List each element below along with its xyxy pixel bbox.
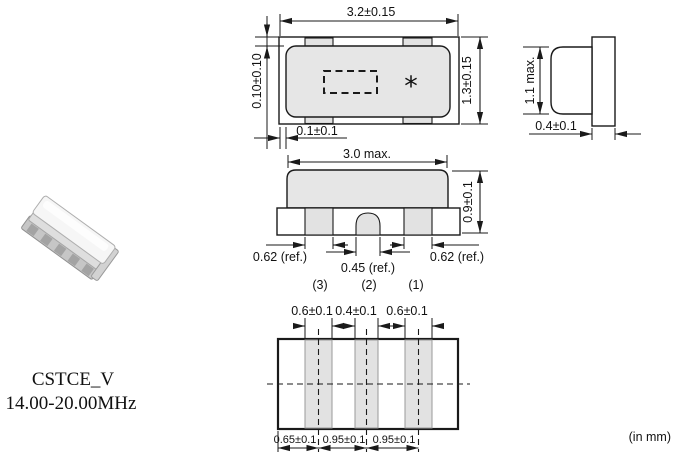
dim-max-height: 1.1 max. bbox=[523, 57, 537, 105]
dim-pad-pitch-1: 0.65±0.1 bbox=[274, 434, 317, 446]
side-view-substrate bbox=[592, 37, 615, 126]
datasheet-dimension-drawing: * 3.2±0.15 1.3±0.15 0.10±0.10 0.1±0.1 1.… bbox=[0, 0, 676, 457]
top-view-cap bbox=[286, 46, 450, 117]
units-note: (in mm) bbox=[629, 430, 671, 444]
front-view-electrode-2-dome bbox=[356, 213, 380, 235]
series-name: CSTCE_V bbox=[32, 369, 115, 390]
front-view: 3.0 max. 0.9±0.1 0.62 (ref.) 0.62 (ref.)… bbox=[253, 147, 488, 292]
dim-terminal-center: 0.45 (ref.) bbox=[341, 261, 395, 275]
component-photo bbox=[21, 195, 120, 283]
dim-pad-pitch-3: 0.95±0.1 bbox=[373, 434, 416, 446]
dim-pad-width-left: 0.6±0.1 bbox=[291, 304, 333, 318]
terminal-number-1: (1) bbox=[408, 278, 423, 292]
dim-terminal-right: 0.62 (ref.) bbox=[430, 250, 484, 264]
dim-pad-width-center: 0.4±0.1 bbox=[335, 304, 377, 318]
frequency-range: 14.00-20.00MHz bbox=[6, 393, 137, 414]
top-view-terminal-tab bbox=[403, 38, 432, 46]
land-pattern: 0.6±0.1 0.4±0.1 0.6±0.1 0.65±0.1 0.95±0.… bbox=[267, 304, 470, 452]
front-view-electrode-1 bbox=[404, 208, 432, 235]
dim-overall-height: 1.3±0.15 bbox=[460, 56, 474, 105]
dim-pad-width-right: 0.6±0.1 bbox=[386, 304, 428, 318]
side-view: 1.1 max. 0.4±0.1 bbox=[523, 37, 641, 140]
terminal-number-2: (2) bbox=[361, 278, 376, 292]
side-view-cap bbox=[551, 47, 592, 114]
terminal-number-3: (3) bbox=[312, 278, 327, 292]
dim-overall-width: 3.2±0.15 bbox=[347, 5, 396, 19]
top-view-terminal-tab bbox=[305, 38, 333, 46]
dim-terminal-left: 0.62 (ref.) bbox=[253, 250, 307, 264]
technical-drawing-canvas: * 3.2±0.15 1.3±0.15 0.10±0.10 0.1±0.1 1.… bbox=[0, 0, 676, 457]
dim-pad-pitch-2: 0.95±0.1 bbox=[323, 434, 366, 446]
dim-cap-offset-left: 0.1±0.1 bbox=[296, 124, 338, 138]
dim-overall-height-front: 0.9±0.1 bbox=[461, 181, 475, 223]
front-view-electrode-3 bbox=[305, 208, 333, 235]
top-view: * 3.2±0.15 1.3±0.15 0.10±0.10 0.1±0.1 bbox=[250, 5, 488, 149]
dim-substrate-thickness: 0.4±0.1 bbox=[535, 119, 577, 133]
dim-cap-width: 3.0 max. bbox=[343, 147, 391, 161]
front-view-cap bbox=[287, 170, 448, 208]
marking-asterisk: * bbox=[404, 71, 418, 102]
dim-cap-offset-top: 0.10±0.10 bbox=[250, 53, 264, 109]
